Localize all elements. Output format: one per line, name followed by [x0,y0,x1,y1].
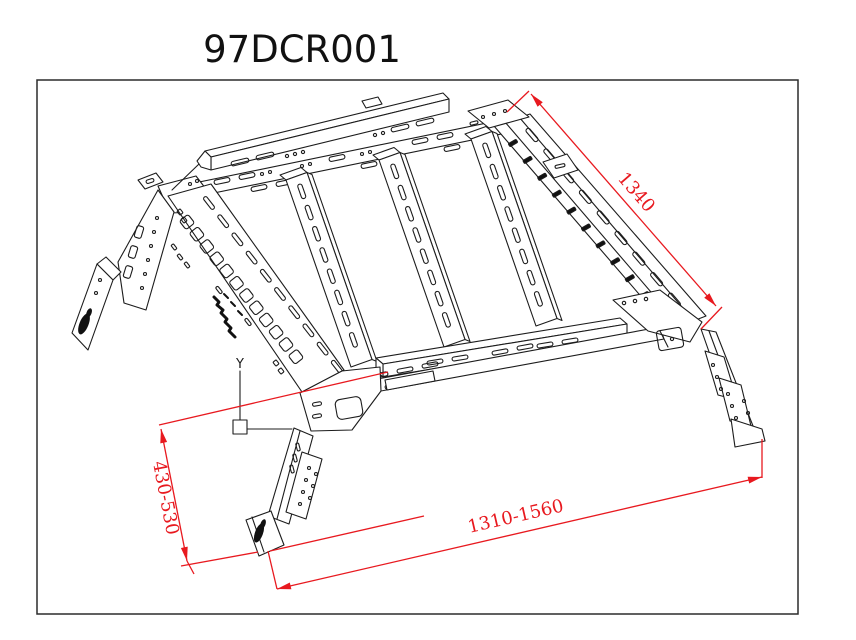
drawing-frame [37,80,798,614]
datum-label: Y [235,357,244,372]
drawing-sheet: 97DCR001 Y 1340 430-530 1310-1560 [0,0,856,640]
drawing-canvas: 97DCR001 Y 1340 430-530 1310-1560 [0,0,856,640]
page-title: 97DCR001 [203,28,401,71]
